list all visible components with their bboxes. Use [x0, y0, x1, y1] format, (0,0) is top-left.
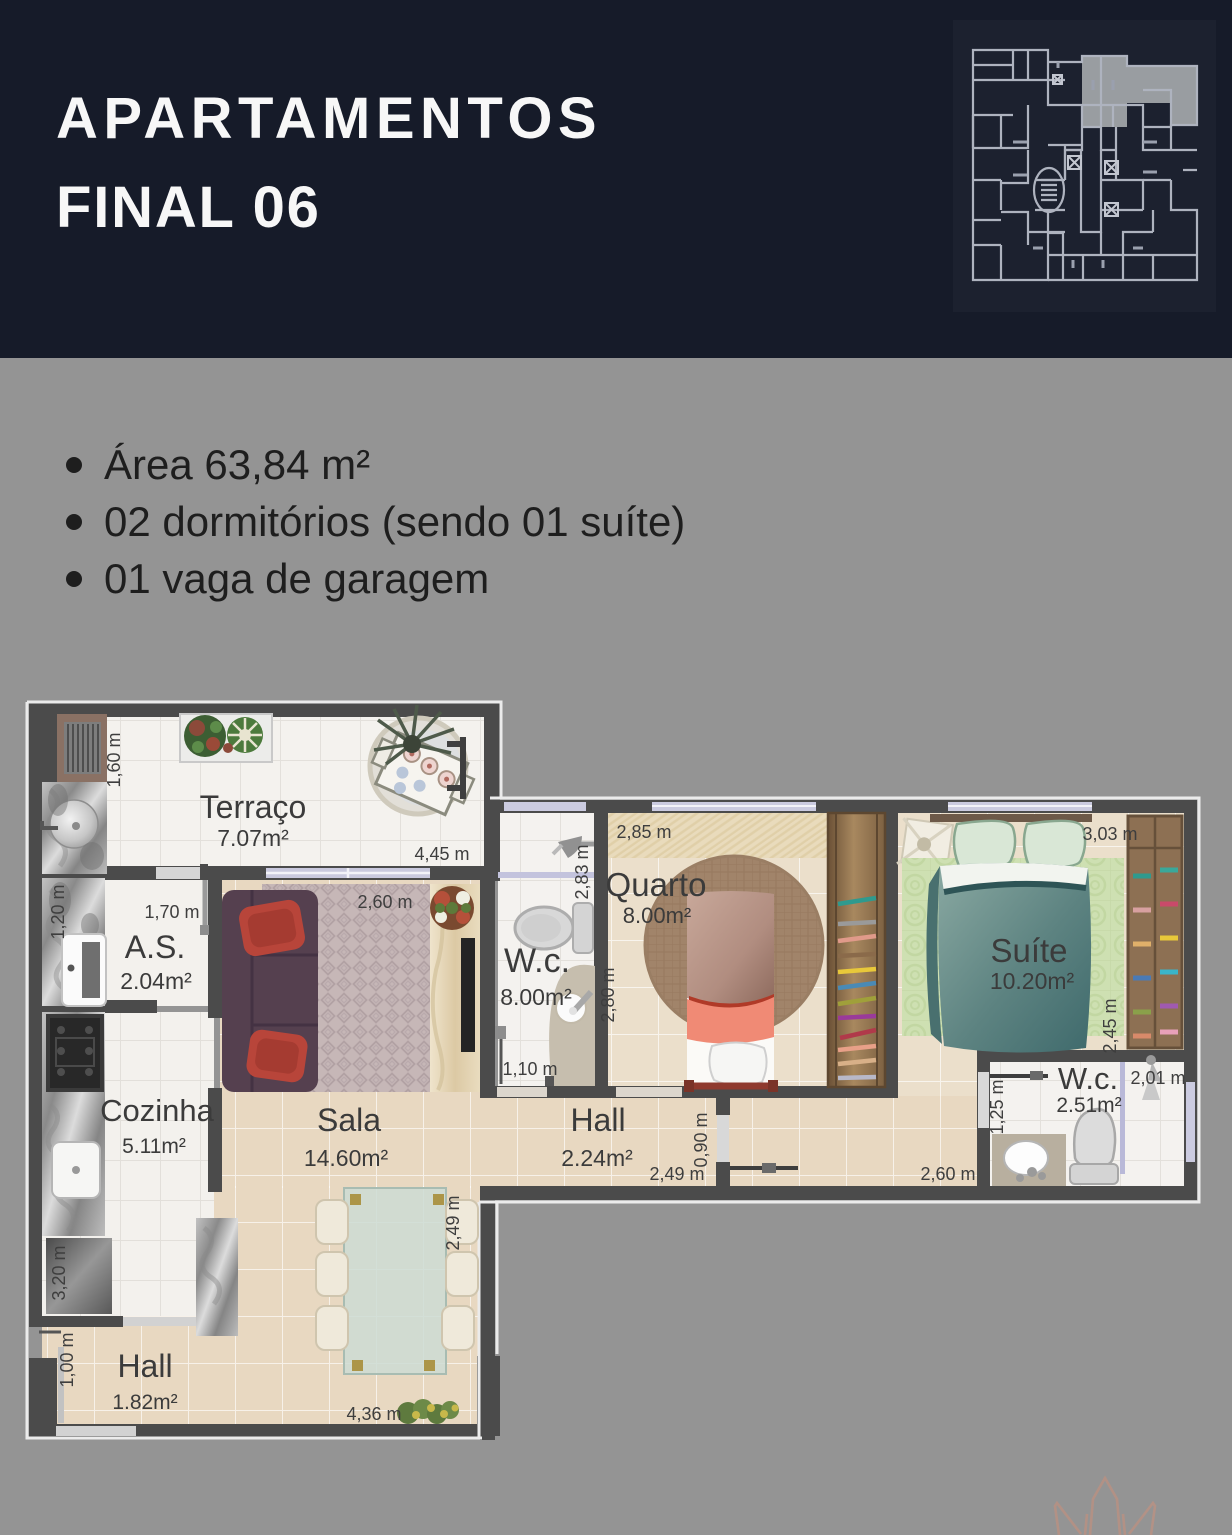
- svg-text:1,70 m: 1,70 m: [144, 902, 199, 922]
- svg-text:8.00m²: 8.00m²: [623, 903, 691, 928]
- svg-text:1,60 m: 1,60 m: [104, 732, 124, 787]
- svg-text:Hall: Hall: [570, 1102, 625, 1138]
- svg-text:W.c.: W.c.: [1058, 1061, 1118, 1096]
- svg-text:Terraço: Terraço: [200, 789, 307, 825]
- svg-text:2,01 m: 2,01 m: [1130, 1068, 1185, 1088]
- svg-text:2,60 m: 2,60 m: [920, 1164, 975, 1184]
- svg-text:5.11m²: 5.11m²: [122, 1135, 186, 1158]
- svg-text:2,85 m: 2,85 m: [616, 822, 671, 842]
- svg-text:1,25 m: 1,25 m: [987, 1079, 1007, 1134]
- svg-text:Sala: Sala: [317, 1102, 381, 1138]
- svg-text:0,90 m: 0,90 m: [691, 1112, 711, 1167]
- svg-text:7.07m²: 7.07m²: [217, 825, 289, 851]
- svg-text:Cozinha: Cozinha: [100, 1093, 214, 1128]
- svg-text:2.51m²: 2.51m²: [1056, 1094, 1121, 1117]
- svg-text:2,45 m: 2,45 m: [1100, 998, 1120, 1053]
- svg-text:4,36 m: 4,36 m: [346, 1404, 401, 1424]
- svg-text:1,20 m: 1,20 m: [48, 884, 68, 939]
- svg-text:Hall: Hall: [117, 1348, 172, 1384]
- svg-text:1,10 m: 1,10 m: [502, 1059, 557, 1079]
- svg-text:10.20m²: 10.20m²: [990, 968, 1075, 994]
- svg-text:3,20 m: 3,20 m: [49, 1245, 69, 1300]
- svg-text:2,49 m: 2,49 m: [443, 1195, 463, 1250]
- svg-text:W.c.: W.c.: [504, 942, 570, 980]
- svg-text:2,83 m: 2,83 m: [572, 844, 592, 899]
- svg-text:1.82m²: 1.82m²: [112, 1391, 177, 1414]
- svg-text:2,80 m: 2,80 m: [598, 967, 618, 1022]
- svg-text:14.60m²: 14.60m²: [304, 1145, 389, 1171]
- svg-text:4,45 m: 4,45 m: [414, 844, 469, 864]
- svg-text:A.S.: A.S.: [125, 929, 185, 965]
- svg-text:2,60 m: 2,60 m: [357, 892, 412, 912]
- svg-text:Quarto: Quarto: [606, 866, 707, 903]
- svg-text:2.24m²: 2.24m²: [561, 1145, 633, 1171]
- svg-text:8.00m²: 8.00m²: [500, 984, 572, 1010]
- svg-text:2,49 m: 2,49 m: [649, 1164, 704, 1184]
- svg-text:Suíte: Suíte: [990, 932, 1067, 969]
- svg-text:2.04m²: 2.04m²: [120, 968, 192, 994]
- svg-text:1,00 m: 1,00 m: [57, 1332, 77, 1387]
- svg-text:3,03 m: 3,03 m: [1082, 824, 1137, 844]
